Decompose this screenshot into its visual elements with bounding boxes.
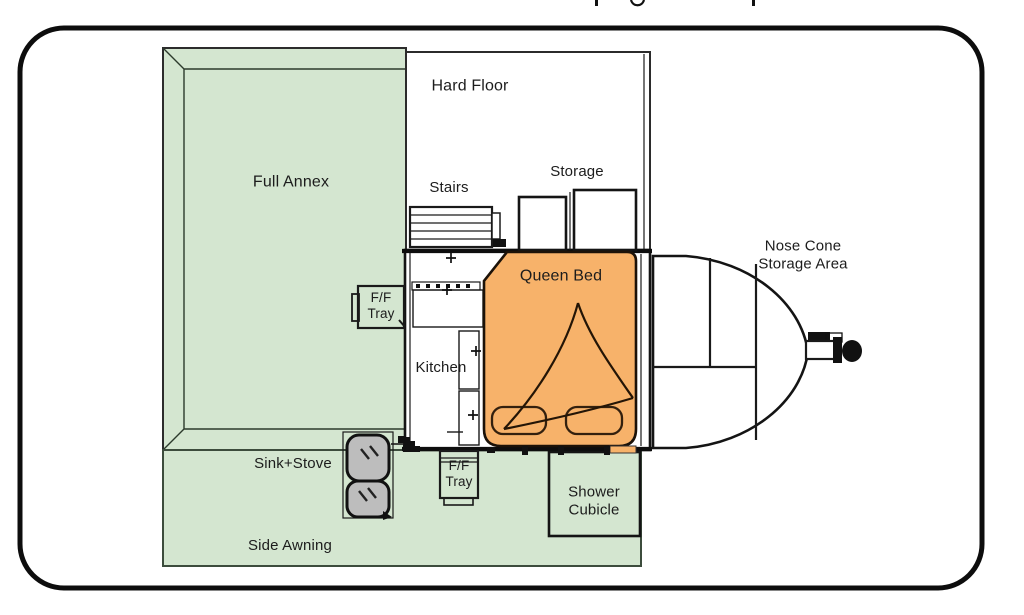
nose-cone-label-line2: Storage Area — [758, 255, 847, 273]
floor-plan-page: Full Annex Hard Floor Stairs Storage Que… — [0, 0, 1024, 615]
pillow-right — [566, 407, 622, 434]
shower-cubicle-line2: Cubicle — [568, 501, 620, 519]
full-annex-area — [163, 48, 406, 450]
full-annex-label: Full Annex — [253, 174, 329, 193]
shower-cubicle-label: Shower Cubicle — [568, 483, 620, 518]
storage-boxes — [519, 190, 636, 250]
cropped-title-fragments — [595, 0, 755, 6]
nose-cone-drawing — [653, 256, 808, 448]
ff-tray-upper-line1: F/F — [367, 290, 394, 306]
side-awning-label: Side Awning — [248, 537, 332, 555]
kitchen-label: Kitchen — [415, 359, 466, 377]
hitch-coupler-icon — [806, 332, 862, 363]
storage-label: Storage — [550, 163, 604, 181]
ff-tray-upper-label: F/F Tray — [367, 290, 394, 322]
floor-plan-drawing — [0, 0, 1024, 615]
ff-tray-upper-line2: Tray — [367, 306, 394, 322]
stairs-label: Stairs — [429, 179, 468, 197]
stairs-drawing — [410, 207, 506, 247]
sink-stove-label: Sink+Stove — [254, 455, 332, 473]
hard-floor-label: Hard Floor — [431, 78, 508, 97]
queen-bed-label: Queen Bed — [520, 268, 602, 287]
ff-tray-lower-line1: F/F — [445, 458, 472, 474]
nose-cone-label-line1: Nose Cone — [758, 237, 847, 255]
shower-cubicle-line1: Shower — [568, 483, 620, 501]
nose-cone-label: Nose Cone Storage Area — [758, 237, 847, 272]
ff-tray-lower-line2: Tray — [445, 474, 472, 490]
ff-tray-lower-label: F/F Tray — [445, 458, 472, 490]
